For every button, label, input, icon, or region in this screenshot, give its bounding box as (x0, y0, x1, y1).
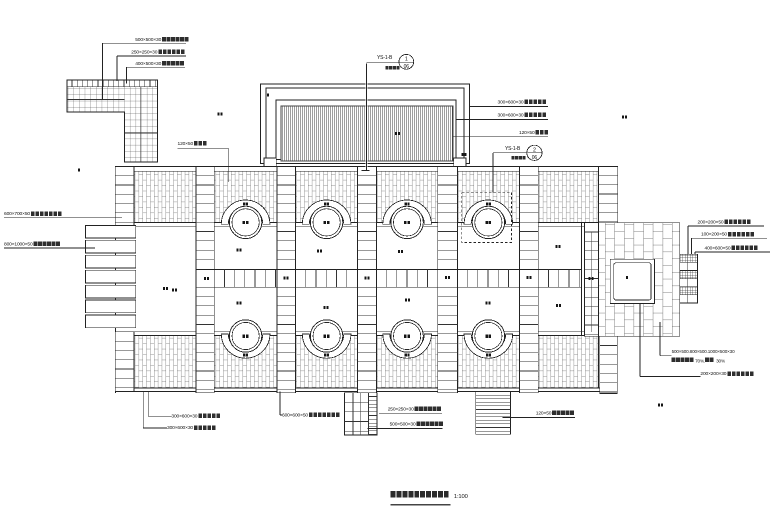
svg-text:YS-1-B: YS-1-B (505, 146, 521, 152)
svg-text:600×700×50: 600×700×50 (4, 211, 30, 217)
svg-text:70%.: 70%. (695, 358, 705, 363)
svg-text:120×50: 120×50 (178, 141, 194, 147)
svg-text:120×50: 120×50 (519, 130, 535, 136)
svg-text:250×250×30: 250×250×30 (131, 49, 157, 55)
svg-text:30%: 30% (716, 358, 725, 363)
svg-text:500×500.800×500.1000×500×30: 500×500.800×500.1000×500×30 (672, 349, 735, 354)
svg-text:06: 06 (532, 155, 538, 161)
svg-text:1:100: 1:100 (454, 494, 468, 500)
svg-text:250×250×30: 250×250×30 (388, 406, 414, 412)
svg-text:500×500×30: 500×500×30 (135, 37, 161, 43)
svg-text:120×50: 120×50 (536, 410, 552, 416)
svg-text:1: 1 (405, 56, 408, 62)
svg-text:300×600×30: 300×600×30 (167, 425, 193, 431)
svg-text:300×600×30: 300×600×30 (498, 112, 524, 118)
svg-text:300×600×30: 300×600×30 (498, 99, 524, 105)
svg-text:800×1000×50: 800×1000×50 (4, 241, 33, 247)
svg-text:500×500×30: 500×500×30 (390, 421, 416, 427)
svg-text:06: 06 (404, 64, 410, 70)
svg-text:YS-1-B: YS-1-B (377, 55, 393, 61)
svg-text:400×600×50: 400×600×50 (705, 245, 731, 251)
svg-text:200×200×30: 200×200×30 (700, 371, 726, 377)
svg-text:100×200×50: 100×200×50 (701, 232, 727, 238)
svg-text:200×200×50: 200×200×50 (698, 219, 724, 225)
svg-text:300×600×30: 300×600×30 (171, 413, 197, 419)
svg-text:2: 2 (533, 147, 536, 153)
svg-text:600×600×50: 600×600×50 (282, 412, 308, 418)
svg-text:400×500×30: 400×500×30 (135, 61, 161, 67)
